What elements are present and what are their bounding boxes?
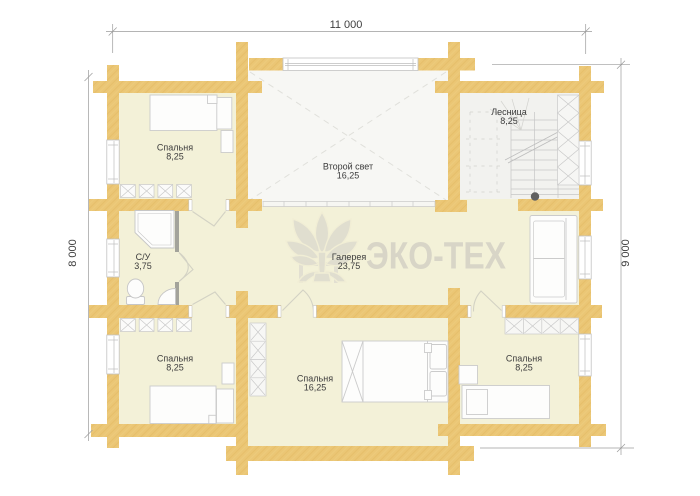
svg-text:8,25: 8,25 (515, 363, 533, 373)
svg-text:9 000: 9 000 (620, 239, 632, 267)
svg-text:11 000: 11 000 (330, 19, 363, 31)
svg-text:23,75: 23,75 (338, 261, 361, 271)
svg-text:8,25: 8,25 (166, 152, 184, 162)
svg-text:8,25: 8,25 (500, 116, 518, 126)
svg-text:3,75: 3,75 (134, 261, 152, 271)
svg-text:8,25: 8,25 (166, 363, 184, 373)
svg-text:16,25: 16,25 (304, 383, 327, 393)
svg-text:ЭКО-ТЕХ: ЭКО-ТЕХ (366, 236, 507, 278)
svg-text:8 000: 8 000 (67, 239, 79, 267)
svg-text:16,25: 16,25 (337, 171, 360, 181)
